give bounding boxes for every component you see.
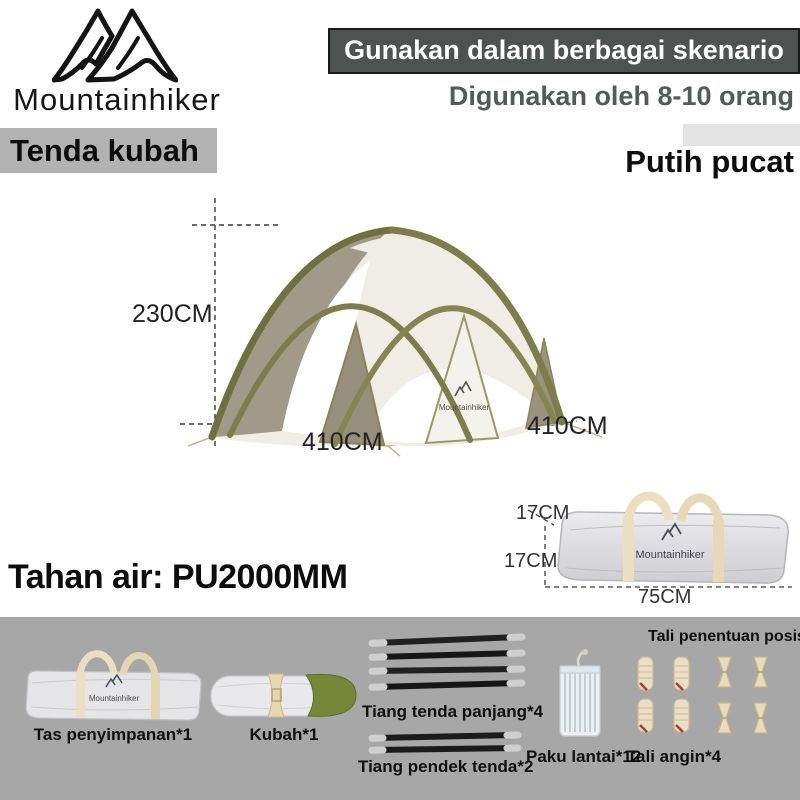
storage-bag-label: Tas penyimpanan*1 — [14, 725, 212, 745]
storage-bag-illustration: Mountainhiker — [18, 643, 208, 725]
parts-section: Mountainhiker Tas penyimpanan*1 Kubah*1 — [0, 617, 800, 800]
short-poles-label: Tiang pendek tenda*2 — [358, 757, 530, 777]
wind-ropes-label: Tali angin*4 — [626, 747, 722, 767]
brand-name: Mountainhiker — [6, 82, 228, 118]
tent-dimension-figure: Mountainhiker 230CM 410CM 410CM — [130, 190, 630, 465]
svg-text:Mountainhiker: Mountainhiker — [439, 403, 490, 412]
bag-length-dimension: 75CM — [638, 586, 691, 609]
tent-width-dimension: 410CM — [302, 428, 383, 457]
color-variant-name: Putih pucat — [625, 144, 794, 180]
carry-bag-dimension-figure: Mountainhiker 17CM 17CM 75CM — [500, 480, 800, 610]
stakes-bag-illustration — [552, 649, 608, 743]
short-poles-illustration — [366, 730, 524, 756]
stakes-label: Paku lantai*12 — [526, 747, 630, 767]
long-poles-label: Tiang tenda panjang*4 — [362, 702, 532, 722]
dome-roll-label: Kubah*1 — [226, 725, 342, 745]
product-type-badge: Tenda kubah — [0, 128, 217, 173]
long-poles-illustration — [366, 631, 528, 701]
positioning-ropes-illustration — [712, 655, 792, 743]
positioning-ropes-label: Tali penentuan posisi*4 — [648, 628, 798, 646]
product-infographic: Mountainhiker Gunakan dalam berbagai ske… — [0, 0, 800, 800]
bag-depth-dimension: 17CM — [516, 502, 569, 525]
svg-text:Mountainhiker: Mountainhiker — [635, 549, 704, 561]
mountainhiker-logo-icon — [52, 6, 178, 84]
wind-ropes-illustration — [632, 655, 710, 739]
svg-text:Mountainhiker: Mountainhiker — [89, 694, 140, 703]
decor-gray-strip — [683, 124, 800, 146]
dome-roll-illustration — [210, 667, 358, 721]
bag-height-dimension: 17CM — [504, 550, 557, 573]
waterproof-spec: Tahan air: PU2000MM — [8, 558, 347, 597]
scenario-banner: Gunakan dalam berbagai skenario — [328, 28, 800, 74]
tent-height-dimension: 230CM — [132, 300, 213, 329]
capacity-text: Digunakan oleh 8-10 orang — [449, 81, 794, 112]
tent-depth-dimension: 410CM — [527, 412, 608, 441]
